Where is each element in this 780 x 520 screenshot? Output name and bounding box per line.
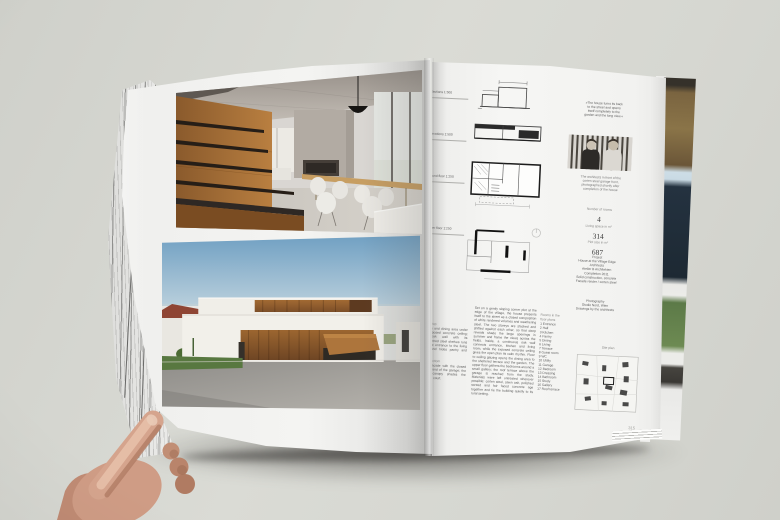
finger: [175, 474, 195, 494]
right-page: Sections 1:500 Elevations 1:500 Ground f…: [430, 60, 670, 458]
book-spine: [424, 58, 434, 456]
left-page: [116, 56, 432, 458]
left-page-shading: [116, 56, 432, 458]
hand: [55, 405, 205, 520]
photo-scene: Sections 1:500 Elevations 1:500 Ground f…: [0, 0, 780, 520]
right-page-shading: [430, 60, 670, 458]
